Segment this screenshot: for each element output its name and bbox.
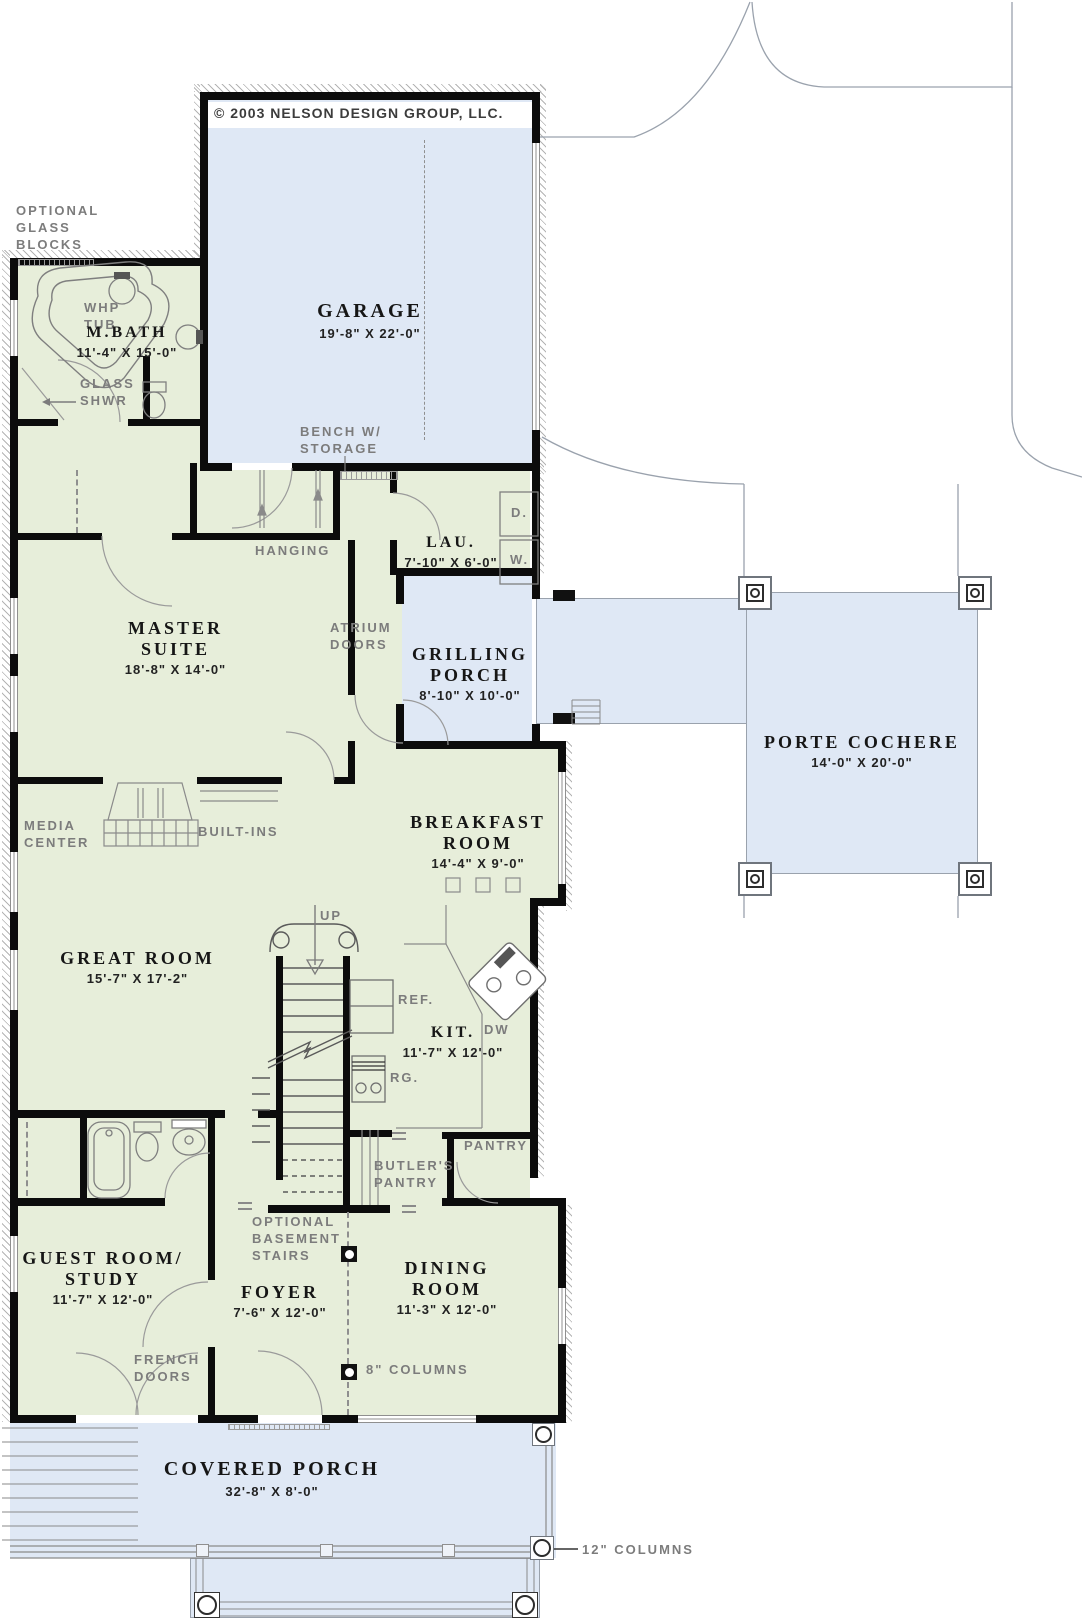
porch-post (196, 1544, 209, 1557)
toilet-icon (143, 382, 166, 418)
porte-cochere-column (958, 576, 992, 610)
washer-label: W. (510, 552, 532, 569)
laundry-label: LAU.7'-10" X 6'-0" (390, 534, 512, 570)
garage-label: GARAGE19'-8" X 22'-0" (275, 300, 465, 341)
pantry-label: PANTRY (464, 1138, 530, 1155)
porte-cochere-column (958, 862, 992, 896)
guest-toilet-icon (134, 1122, 161, 1161)
foyer-column-8in (341, 1364, 357, 1380)
copyright: © 2003 NELSON DESIGN GROUP, LLC. (214, 105, 544, 121)
refrigerator-icon (350, 980, 393, 1033)
media-center-label: MEDIA CENTER (24, 818, 106, 852)
columns8-label: 8" COLUMNS (366, 1362, 476, 1379)
french-doors-label: FRENCH DOORS (134, 1352, 208, 1386)
closet-rod-icon (258, 470, 322, 528)
great-room-label: GREAT ROOM15'-7" X 17'-2" (50, 948, 225, 987)
driveway-lines (540, 2, 1082, 918)
guest-sink-icon (172, 1120, 206, 1155)
built-ins-label: BUILT-INS (198, 824, 298, 841)
porte-cochere-column (738, 862, 772, 896)
foyer-label: FOYER7'-6" X 12'-0" (218, 1282, 342, 1321)
porte-cochere-column (738, 576, 772, 610)
columns12-label: 12" COLUMNS (582, 1542, 702, 1559)
atrium-doors-label: ATRIUM DOORS (330, 620, 390, 654)
porte-cochere-label: PORTE COCHERE14'-0" X 20'-0" (762, 732, 962, 771)
master-suite-label: MASTER SUITE18'-8" X 14'-0" (108, 618, 243, 678)
porch-side-steps (2, 1428, 138, 1540)
dining-room-label: DINING ROOM11'-3" X 12'-0" (388, 1258, 506, 1318)
glass-shwr-label: GLASS SHWR (80, 376, 144, 410)
grilling-porch-label: GRILLING PORCH8'-10" X 10'-0" (406, 644, 534, 704)
range-icon (352, 1056, 385, 1102)
optional-glass-blocks-label: OPTIONAL GLASS BLOCKS (16, 203, 108, 254)
covered-porch-label: COVERED PORCH32'-8" X 8'-0" (152, 1458, 392, 1499)
mbath-label: M.BATH11'-4" X 15'-0" (67, 324, 187, 360)
guest-room-label: GUEST ROOM/ STUDY11'-7" X 12'-0" (14, 1248, 192, 1308)
built-ins-icon (200, 791, 278, 801)
stoop-column (194, 1592, 220, 1618)
up-label: UP (320, 908, 350, 925)
stoop-steps (196, 1558, 534, 1618)
bench-label: BENCH W/ STORAGE (300, 424, 420, 458)
porch-column-12in (532, 1423, 555, 1446)
hanging-label: HANGING (255, 543, 335, 560)
rg-label: RG. (390, 1070, 426, 1087)
media-center-icon (104, 783, 198, 846)
optional-basement-stairs-label: OPTIONAL BASEMENT STAIRS (252, 1214, 347, 1265)
dw-label: DW (484, 1022, 520, 1039)
guest-tub-icon (88, 1122, 130, 1198)
breakfast-room-label: BREAKFAST ROOM14'-4" X 9'-0" (400, 812, 556, 872)
ref-label: REF. (398, 992, 440, 1009)
porch-column-12in (530, 1536, 554, 1560)
floor-plan: © 2003 NELSON DESIGN GROUP, LLC. OPTIONA… (0, 0, 1082, 1621)
stoop-column (512, 1592, 538, 1618)
butlers-pantry-label: BUTLER'S PANTRY (374, 1158, 470, 1192)
porch-post (442, 1544, 455, 1557)
staircase (252, 924, 358, 1192)
porch-post (320, 1544, 333, 1557)
bar-stools (446, 878, 520, 892)
dryer-label: D. (511, 505, 533, 522)
walkway-steps (572, 700, 600, 724)
